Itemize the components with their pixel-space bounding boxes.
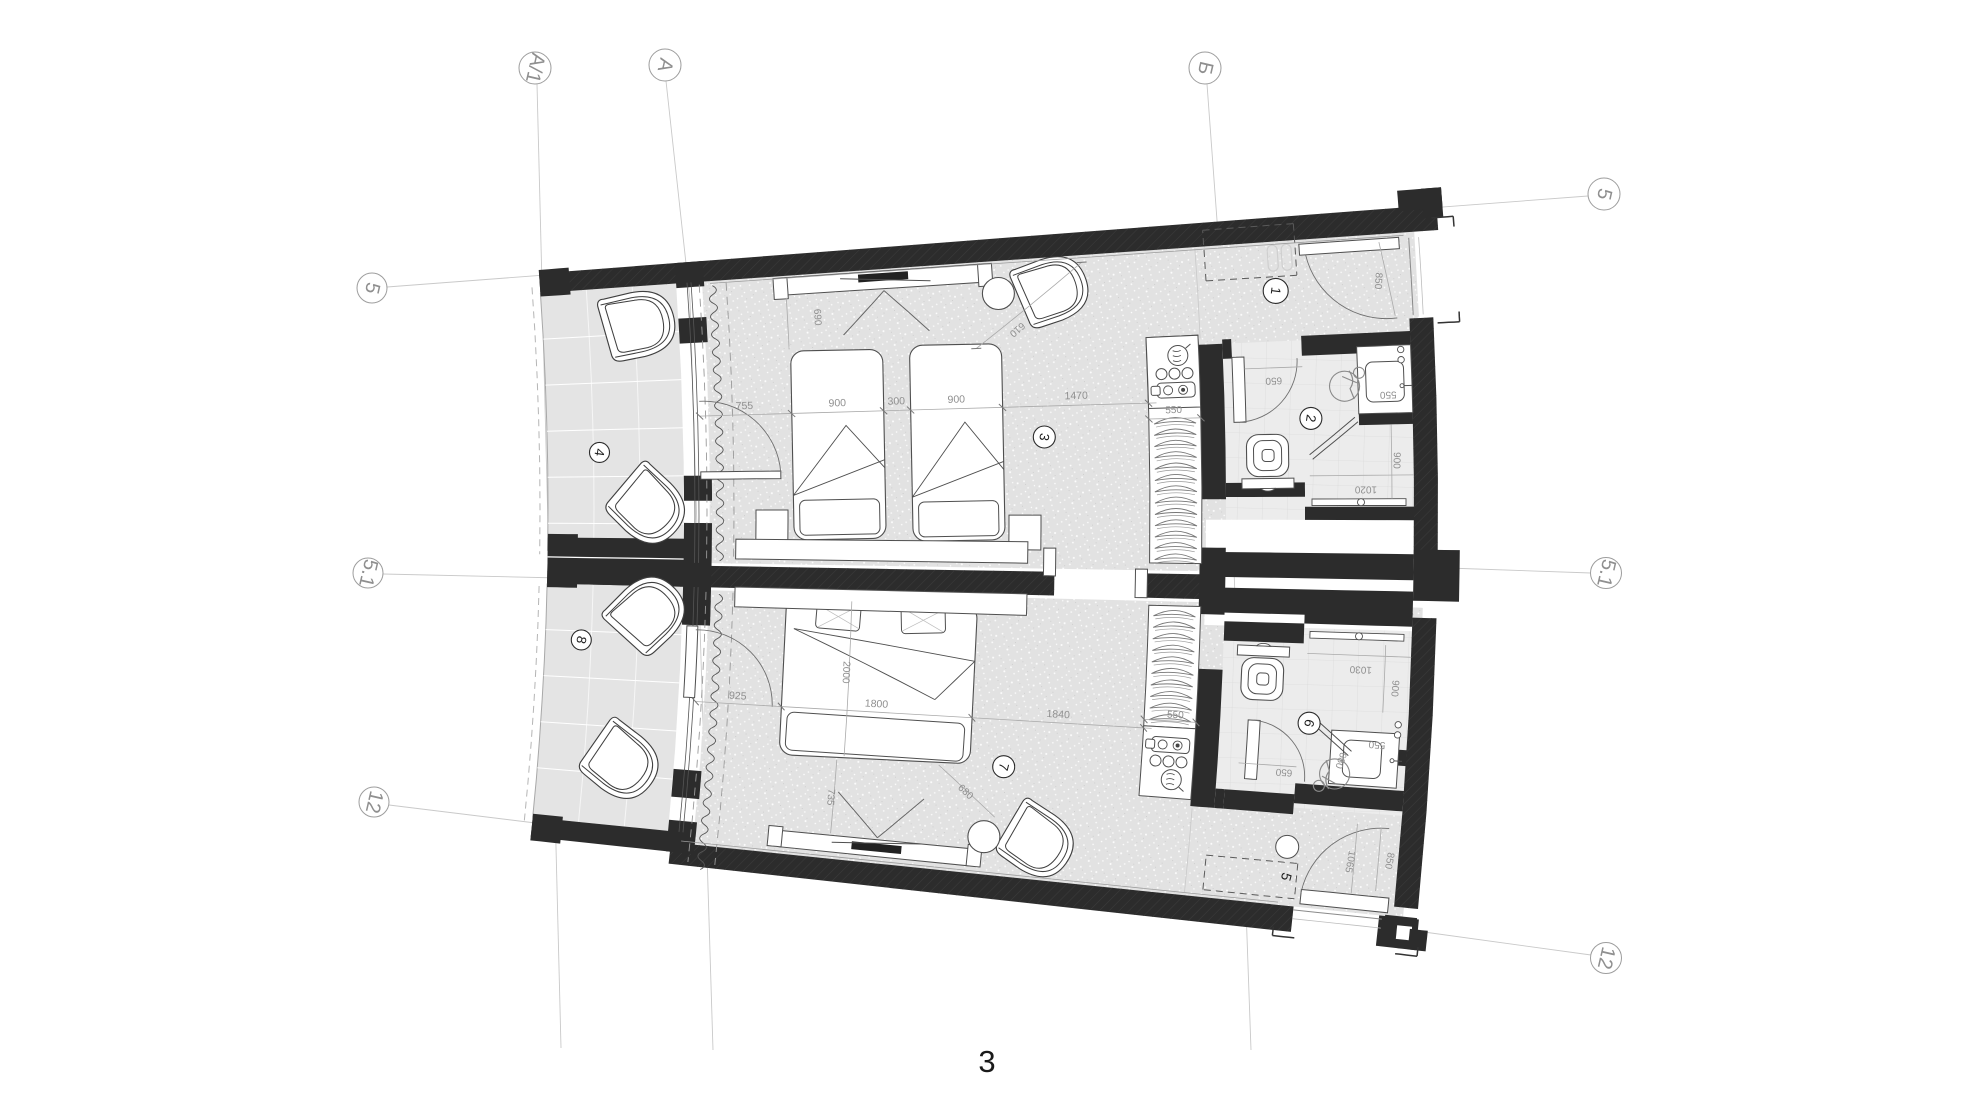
- svg-text:755: 755: [735, 400, 753, 413]
- svg-text:2000: 2000: [840, 661, 852, 684]
- svg-text:1030: 1030: [1349, 663, 1372, 675]
- svg-text:900: 900: [1388, 680, 1400, 698]
- svg-text:300: 300: [887, 395, 905, 408]
- svg-text:650: 650: [1265, 374, 1282, 386]
- svg-text:900: 900: [828, 397, 846, 410]
- svg-text:650: 650: [1275, 766, 1293, 778]
- svg-text:550: 550: [1167, 710, 1185, 722]
- svg-text:1840: 1840: [1046, 708, 1070, 721]
- svg-text:3: 3: [978, 1044, 995, 1079]
- svg-text:550: 550: [1368, 738, 1386, 750]
- svg-text:550: 550: [1379, 388, 1396, 400]
- svg-text:735: 735: [824, 788, 836, 806]
- svg-text:1800: 1800: [864, 698, 888, 711]
- svg-text:925: 925: [729, 690, 747, 703]
- svg-text:1470: 1470: [1064, 390, 1088, 403]
- svg-text:550: 550: [1165, 405, 1182, 416]
- svg-text:1020: 1020: [1354, 483, 1377, 494]
- svg-text:900: 900: [947, 393, 965, 406]
- svg-text:900: 900: [1391, 452, 1402, 469]
- svg-text:690: 690: [811, 309, 823, 327]
- svg-text:850: 850: [1372, 272, 1384, 290]
